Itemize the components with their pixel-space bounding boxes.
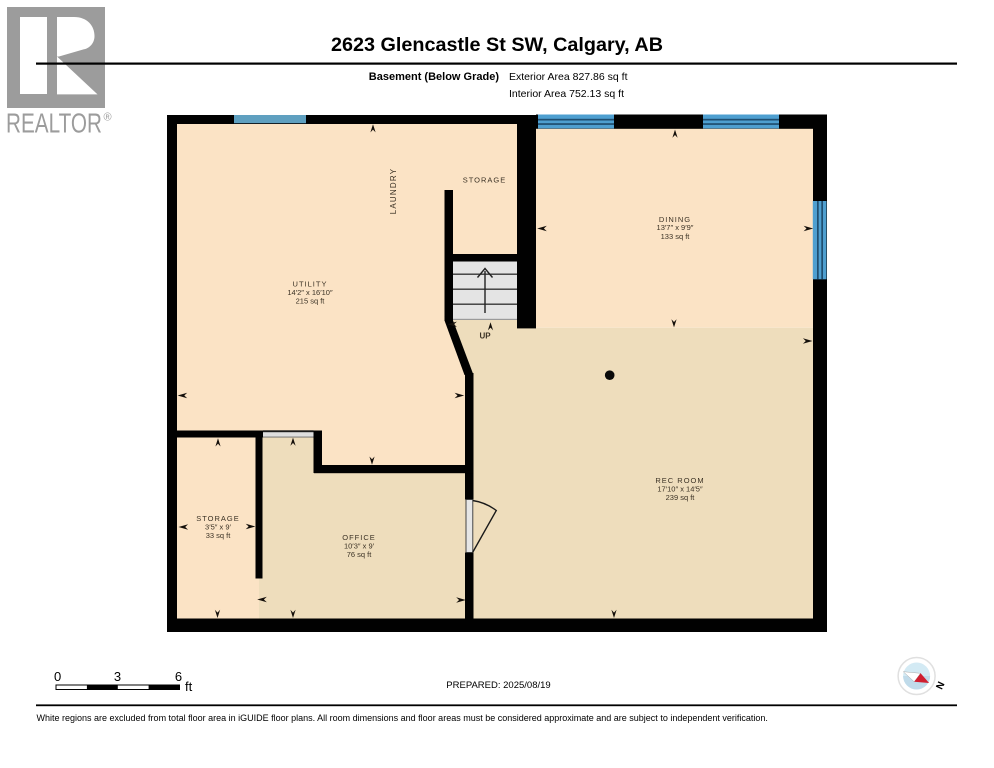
svg-text:White regions are excluded fro: White regions are excluded from total fl…: [37, 713, 768, 723]
svg-text:Basement (Below Grade): Basement (Below Grade): [369, 71, 500, 83]
svg-text:33 sq ft: 33 sq ft: [206, 531, 232, 540]
svg-text:0: 0: [54, 669, 61, 684]
svg-text:UP: UP: [479, 332, 491, 341]
svg-text:Interior Area 752.13 sq ft: Interior Area 752.13 sq ft: [509, 88, 624, 100]
svg-text:PREPARED: 2025/08/19: PREPARED: 2025/08/19: [446, 680, 550, 691]
svg-text:76 sq ft: 76 sq ft: [347, 550, 373, 559]
svg-text:Exterior Area 827.86 sq ft: Exterior Area 827.86 sq ft: [509, 71, 628, 83]
svg-text:REALTOR: REALTOR: [6, 108, 102, 139]
svg-text:13′7″ x 9′9″: 13′7″ x 9′9″: [657, 223, 694, 232]
svg-text:215 sq ft: 215 sq ft: [296, 296, 326, 305]
svg-text:6: 6: [175, 669, 182, 684]
svg-text:LAUNDRY: LAUNDRY: [389, 168, 398, 215]
svg-text:3: 3: [114, 669, 121, 684]
svg-text:®: ®: [104, 112, 112, 124]
svg-text:133 sq ft: 133 sq ft: [661, 232, 691, 241]
svg-text:STORAGE: STORAGE: [463, 176, 507, 185]
svg-text:239 sq ft: 239 sq ft: [666, 493, 696, 502]
svg-text:ft: ft: [185, 679, 193, 694]
svg-text:2623 Glencastle St SW, Calgary: 2623 Glencastle St SW, Calgary, AB: [331, 34, 663, 56]
svg-text:N: N: [934, 680, 947, 691]
